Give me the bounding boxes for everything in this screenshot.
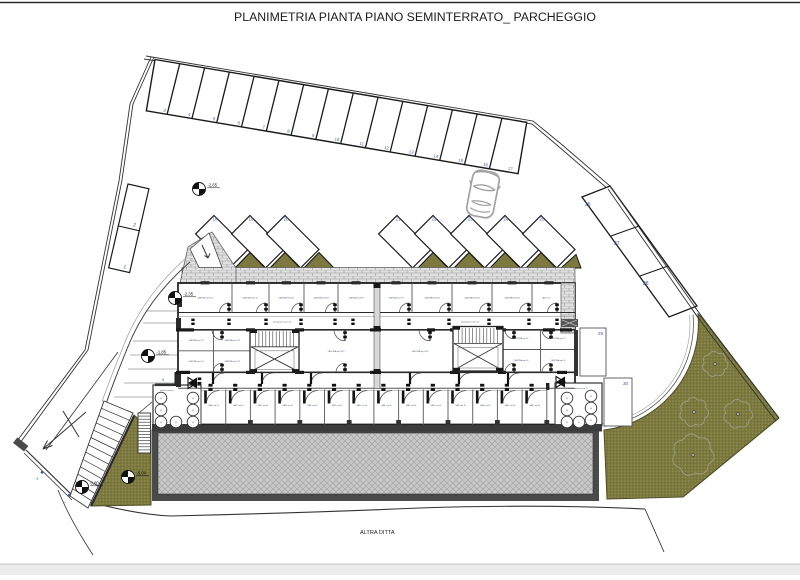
svg-text:ALTRA DITTA: ALTRA DITTA [360, 530, 395, 536]
svg-text:CANTINA mq 9.60: CANTINA mq 9.60 [504, 297, 520, 300]
svg-text:CANTINA mq 9.60: CANTINA mq 9.60 [424, 297, 440, 300]
svg-text:GAR. mq 16: GAR. mq 16 [529, 404, 539, 407]
svg-text:CANTINA mq 7.90: CANTINA mq 7.90 [388, 297, 404, 300]
svg-text:CANTINA mq 8.60: CANTINA mq 8.60 [278, 297, 294, 300]
svg-text:21: 21 [395, 217, 401, 222]
svg-text:-2,35: -2,35 [184, 292, 194, 297]
svg-text:CANTINA mq 23.20: CANTINA mq 23.20 [328, 350, 345, 353]
svg-text:26: 26 [585, 202, 591, 208]
svg-text:CANTINA mq 6.6: CANTINA mq 6.6 [551, 359, 566, 362]
svg-text:CANTINA mq 7.10: CANTINA mq 7.10 [224, 360, 240, 363]
svg-text:CANTINA mq 7.10: CANTINA mq 7.10 [188, 339, 204, 342]
svg-text:19: 19 [248, 217, 254, 222]
svg-text:CANTINA mq 7.10: CANTINA mq 7.10 [224, 339, 240, 342]
svg-text:CANTINA mq 23.20: CANTINA mq 23.20 [412, 350, 429, 353]
svg-text:GAR. mq 16: GAR. mq 16 [307, 404, 317, 407]
svg-text:GAR. mq 16: GAR. mq 16 [282, 404, 292, 407]
svg-text:GAR. mq 16: GAR. mq 16 [208, 404, 218, 407]
svg-text:CANTINA mq 6.6: CANTINA mq 6.6 [514, 359, 529, 362]
svg-text:CANTINA mq 7.10: CANTINA mq 7.10 [188, 360, 204, 363]
svg-text:CANT. 6.6: CANT. 6.6 [542, 297, 551, 300]
svg-text:CANTINA mq 6.6: CANTINA mq 6.6 [551, 337, 566, 340]
svg-text:0,00: 0,00 [91, 481, 100, 486]
svg-text:25: 25 [539, 217, 545, 222]
svg-text:23: 23 [467, 217, 473, 222]
svg-text:PLANIMETRIA PIANTA PIANO SEMIN: PLANIMETRIA PIANTA PIANO SEMINTERRATO_ P… [234, 10, 596, 24]
svg-text:-5,00: -5,00 [137, 471, 147, 476]
svg-text:24: 24 [503, 217, 509, 222]
svg-text:18: 18 [212, 217, 218, 222]
svg-text:28: 28 [643, 281, 649, 287]
svg-text:disimpegno mq 25.50: disimpegno mq 25.50 [273, 322, 291, 324]
svg-text:CANTINA mq 6.6: CANTINA mq 6.6 [514, 337, 529, 340]
svg-text:GAR. mq 16: GAR. mq 16 [431, 404, 441, 407]
svg-text:GAR. mq 16: GAR. mq 16 [505, 404, 515, 407]
svg-text:GAR. mq 16: GAR. mq 16 [233, 404, 243, 407]
svg-text:locale autoclave: locale autoclave [160, 389, 174, 392]
svg-text:CANTINA mq 8.60: CANTINA mq 8.60 [348, 297, 364, 300]
svg-text:GAR. mq 16: GAR. mq 16 [356, 404, 366, 407]
svg-text:CANTINA mq 9.35: CANTINA mq 9.35 [197, 297, 213, 300]
svg-text:27: 27 [614, 241, 620, 247]
svg-text:GAR. mq 16: GAR. mq 16 [258, 404, 268, 407]
svg-text:CANTINA mq 9.60: CANTINA mq 9.60 [464, 297, 480, 300]
svg-text:GAR. mq 16: GAR. mq 16 [332, 404, 342, 407]
svg-text:CANTINA mq 9.10: CANTINA mq 9.10 [242, 297, 258, 300]
svg-text:-2,65: -2,65 [208, 183, 218, 188]
svg-text:GAR. mq 16: GAR. mq 16 [406, 404, 416, 407]
svg-text:30: 30 [623, 381, 629, 386]
svg-text:GAR. mq 16: GAR. mq 16 [480, 404, 490, 407]
svg-text:GAR. mq 16: GAR. mq 16 [381, 404, 391, 407]
svg-text:29: 29 [598, 331, 604, 336]
svg-text:CANTINA mq 8.60: CANTINA mq 8.60 [313, 297, 329, 300]
svg-text:disimpegno mq 25.50: disimpegno mq 25.50 [461, 322, 479, 324]
svg-text:20: 20 [283, 217, 289, 222]
svg-text:22: 22 [431, 217, 437, 222]
svg-text:locale autoclave mq 12: locale autoclave mq 12 [568, 387, 587, 390]
svg-text:-1,85: -1,85 [157, 350, 167, 355]
svg-text:GAR. mq 16: GAR. mq 16 [455, 404, 465, 407]
